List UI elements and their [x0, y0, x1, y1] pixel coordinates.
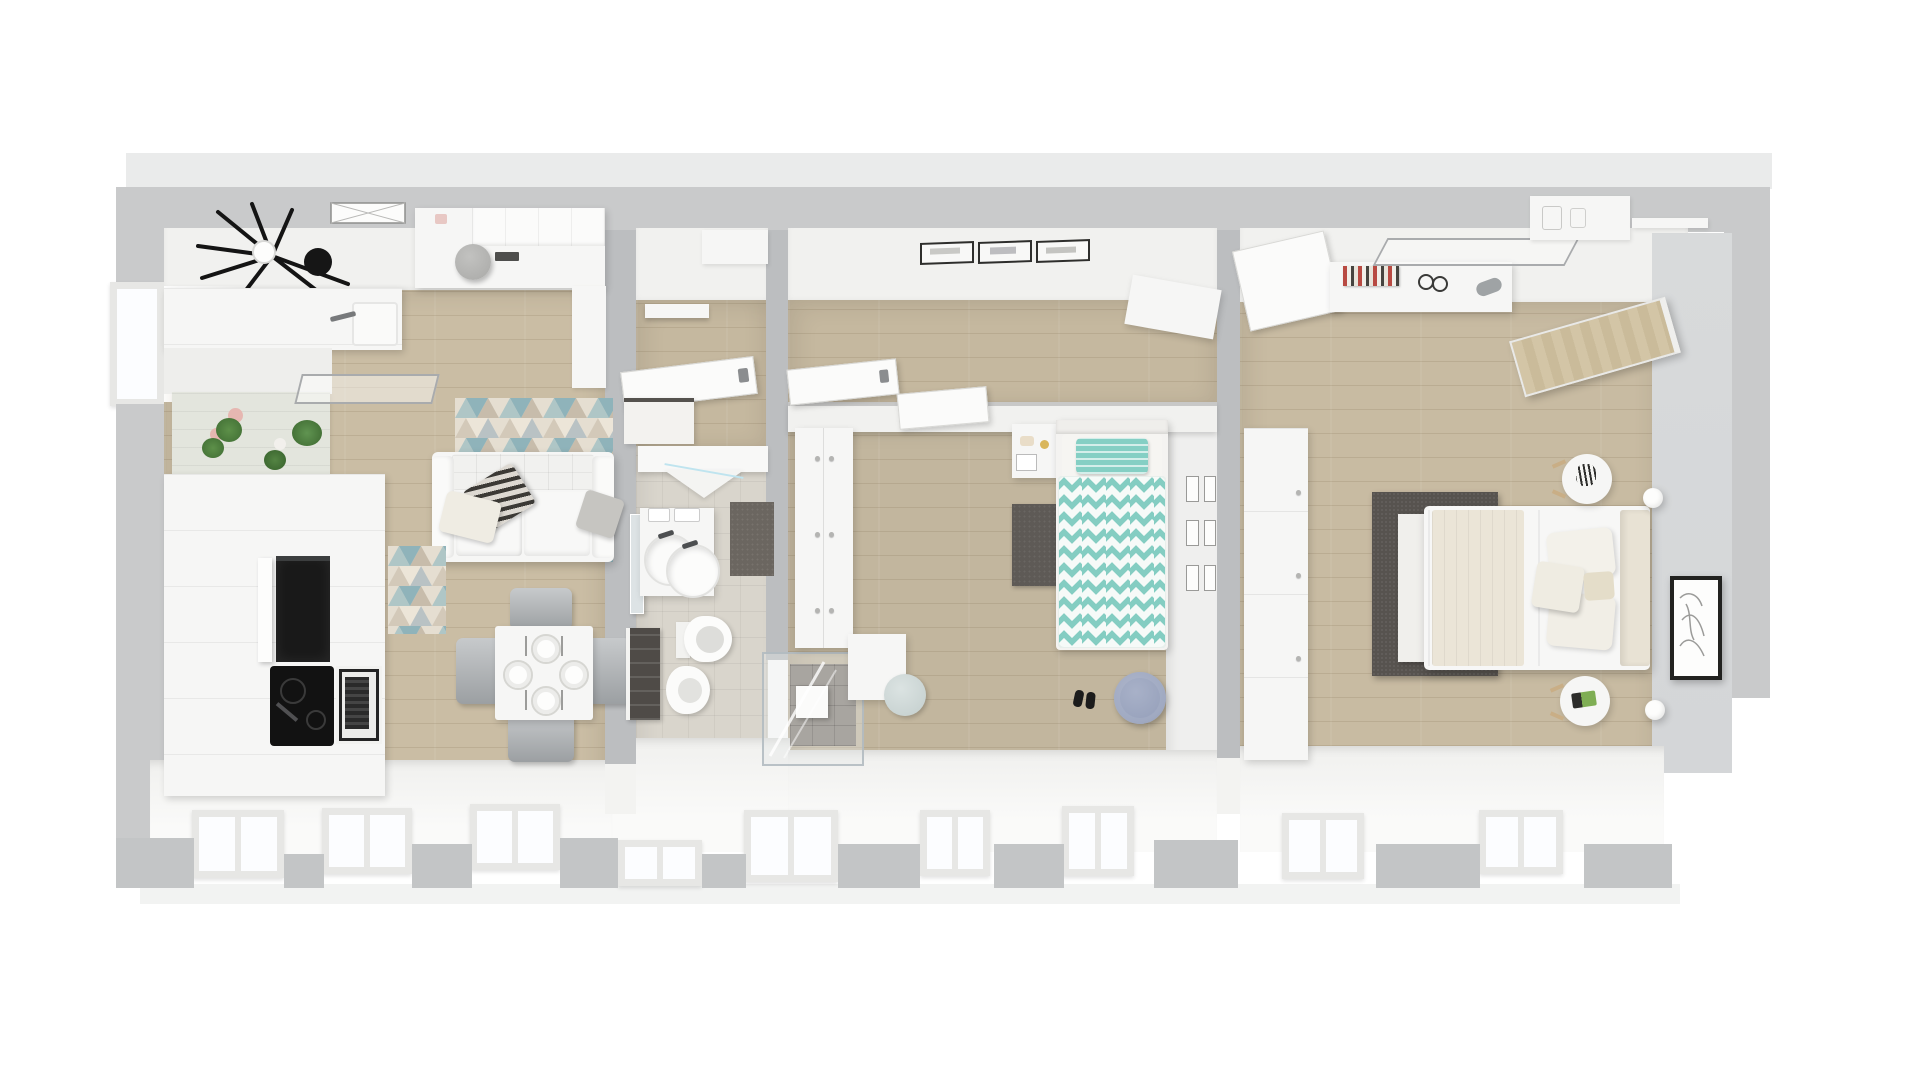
desk-item-gold: [1040, 440, 1049, 449]
master-top-shelf: [1330, 262, 1512, 312]
wall-lamp-north: [1643, 488, 1663, 508]
toilet-bowl-inner: [696, 626, 724, 653]
plant-2: [202, 438, 224, 458]
plant-wall-panel: [172, 392, 330, 484]
mini-frame: [1186, 565, 1199, 591]
pier-master: [1376, 844, 1480, 888]
burner-2: [306, 710, 326, 730]
kids-desk: [1012, 424, 1060, 478]
shelf-glass-item: [1542, 206, 1562, 230]
media-sideboard: [415, 208, 605, 288]
built-in-oven: [276, 556, 330, 662]
hanging-cabinet: [472, 208, 605, 246]
nightstand-book: [1571, 690, 1597, 708]
pier-living-dining: [412, 844, 472, 888]
pan-handle: [276, 702, 298, 722]
bidet-inner: [678, 678, 702, 703]
shower-screen-band: [638, 446, 768, 472]
laptop: [495, 252, 519, 261]
towel-rack: [626, 628, 660, 720]
kitchen-tall-unit: [164, 474, 385, 796]
door-handle: [879, 369, 889, 383]
frame-art: [1046, 247, 1076, 254]
bath-mat-dark: [730, 502, 774, 576]
basin-2: [666, 544, 720, 598]
cutlery-4: [561, 690, 563, 710]
plant-3: [292, 420, 322, 446]
headboard: [1620, 510, 1650, 666]
wall-entry-kids: [766, 230, 788, 660]
glasses-lens-2: [1432, 276, 1448, 292]
pink-decor: [435, 214, 447, 224]
open-cabinet-door: [258, 558, 272, 662]
mini-frame: [1186, 520, 1199, 546]
sofa: [432, 452, 614, 562]
plant-1: [216, 418, 242, 442]
microwave: [336, 666, 382, 744]
desk-item-bread: [1020, 436, 1034, 446]
cream-blanket: [1432, 510, 1524, 666]
pier-kids: [994, 844, 1064, 888]
floorplan-render: [0, 0, 1920, 1080]
pillow-center: [1531, 561, 1586, 614]
floating-shelf-ne: [1530, 196, 1630, 240]
pier-dining-wc: [560, 838, 618, 888]
nightstand-plant: [1576, 464, 1596, 486]
window-living-1: [192, 810, 284, 878]
desk-magazine: [1016, 454, 1037, 471]
exterior-wall-left-upper: [116, 187, 164, 285]
pier-kids-master: [1154, 840, 1238, 888]
burner-1: [280, 678, 306, 704]
dining-chair-north: [510, 588, 572, 630]
shoe-bench: [624, 398, 694, 444]
window-bath: [744, 810, 838, 882]
teal-striped-pillow: [1076, 438, 1148, 474]
master-wardrobe: [1244, 428, 1308, 760]
plate-north: [531, 634, 561, 664]
master-bed: [1398, 506, 1650, 670]
entry-wall-shelf: [645, 304, 709, 318]
hall-frame-3: [1036, 239, 1090, 263]
wall-kids-master: [1217, 230, 1240, 760]
roof-edge-strip: [126, 153, 1772, 189]
cutlery-2: [561, 636, 563, 656]
glass-shelf-outline: [1373, 238, 1580, 266]
left-wall-window: [110, 282, 164, 406]
shelf-object: [1474, 276, 1503, 298]
window-master-1: [1282, 813, 1364, 879]
cutlery-3: [525, 690, 527, 710]
triangle-door-mat: [388, 546, 446, 634]
frame-art: [930, 248, 960, 255]
pier-bath-kids: [838, 844, 920, 888]
wall-hung-toilet: [676, 616, 732, 664]
wardrobe-seam: [823, 428, 824, 648]
floor-pouf: [1114, 672, 1166, 724]
mini-frame: [1204, 565, 1217, 591]
cutlery-1: [525, 636, 527, 656]
wall-stub-living-entry: [605, 764, 636, 814]
pier-wc-bath: [702, 854, 746, 888]
microwave-grill: [345, 677, 369, 729]
plant-4: [264, 450, 286, 470]
entry-top-cabinet: [702, 230, 768, 264]
kitchen-counter-top-run: [164, 288, 402, 350]
kids-wardrobe: [795, 428, 853, 648]
cooktop: [270, 666, 334, 746]
kids-chair: [884, 674, 926, 716]
dining-table: [495, 626, 593, 720]
pillow-accent: [1583, 571, 1615, 601]
plate-east: [559, 660, 589, 690]
kids-gallery-frames: [1186, 476, 1216, 604]
plate-south: [531, 686, 561, 716]
pot-white-1: [274, 438, 286, 450]
bidet: [662, 666, 710, 716]
door-handle: [738, 368, 750, 383]
mini-frame: [1204, 476, 1217, 502]
plate-west: [503, 660, 533, 690]
frame-art: [990, 247, 1016, 255]
window-dining: [470, 804, 560, 870]
bed-headboard: [1056, 420, 1168, 434]
pier-living: [284, 854, 324, 888]
cooker-hood-glass: [294, 374, 439, 404]
wall-stub-kids-master: [1217, 758, 1240, 814]
picture-rail: [1632, 218, 1708, 228]
shelf-glass-item-2: [1570, 208, 1586, 228]
framed-artwork: [1670, 576, 1722, 680]
window-wc: [618, 840, 702, 886]
kids-bed: [1056, 420, 1168, 650]
books-row: [1343, 266, 1399, 286]
hall-frame-1: [920, 241, 974, 265]
pier-sw-corner: [116, 838, 194, 888]
hall-frame-2: [978, 240, 1032, 264]
pier-se-corner: [1584, 844, 1672, 888]
window-kids-2: [1062, 806, 1134, 876]
window-kids-1: [920, 810, 990, 876]
window-living-2: [322, 808, 412, 874]
nightstand-south: [1560, 676, 1610, 726]
nightstand-north: [1562, 454, 1612, 504]
chevron-duvet: [1058, 476, 1166, 648]
media-column: [572, 286, 606, 388]
toiletry-box-1: [648, 508, 670, 522]
toiletry-box-2: [674, 508, 700, 522]
wall-lamp-south: [1645, 700, 1665, 720]
kitchen-sink: [352, 302, 398, 346]
desk-pouf: [455, 244, 491, 280]
mini-frame: [1186, 476, 1199, 502]
window-master-2: [1479, 810, 1563, 874]
mini-frame: [1204, 520, 1217, 546]
